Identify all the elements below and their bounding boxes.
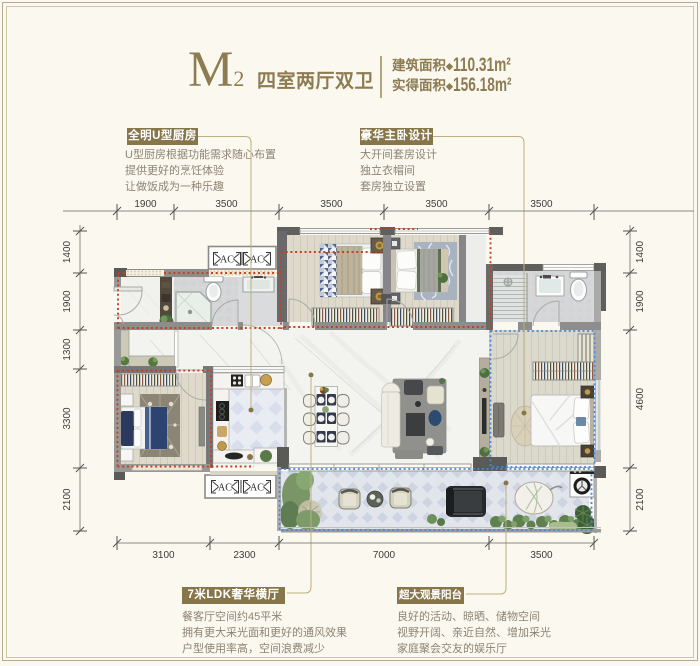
svg-text:1300: 1300 <box>62 338 73 361</box>
svg-text:7000: 7000 <box>373 550 396 561</box>
svg-text:3100: 3100 <box>152 550 175 561</box>
svg-text:2300: 2300 <box>233 550 256 561</box>
svg-text:AC: AC <box>250 483 264 494</box>
svg-text:1900: 1900 <box>134 199 157 210</box>
svg-text:AC: AC <box>250 255 264 266</box>
svg-text:3500: 3500 <box>215 199 238 210</box>
svg-text:2100: 2100 <box>635 488 646 511</box>
svg-text:4600: 4600 <box>635 387 646 410</box>
svg-text:2100: 2100 <box>62 488 73 511</box>
svg-text:3500: 3500 <box>530 199 553 210</box>
svg-text:3500: 3500 <box>425 199 448 210</box>
svg-text:1900: 1900 <box>635 290 646 313</box>
svg-text:AC: AC <box>218 483 232 494</box>
svg-text:3300: 3300 <box>62 407 73 430</box>
svg-text:3500: 3500 <box>320 199 343 210</box>
svg-text:AC: AC <box>220 255 234 266</box>
svg-text:1900: 1900 <box>62 290 73 313</box>
svg-text:1400: 1400 <box>62 240 73 263</box>
svg-text:3500: 3500 <box>530 550 553 561</box>
svg-text:1400: 1400 <box>635 240 646 263</box>
